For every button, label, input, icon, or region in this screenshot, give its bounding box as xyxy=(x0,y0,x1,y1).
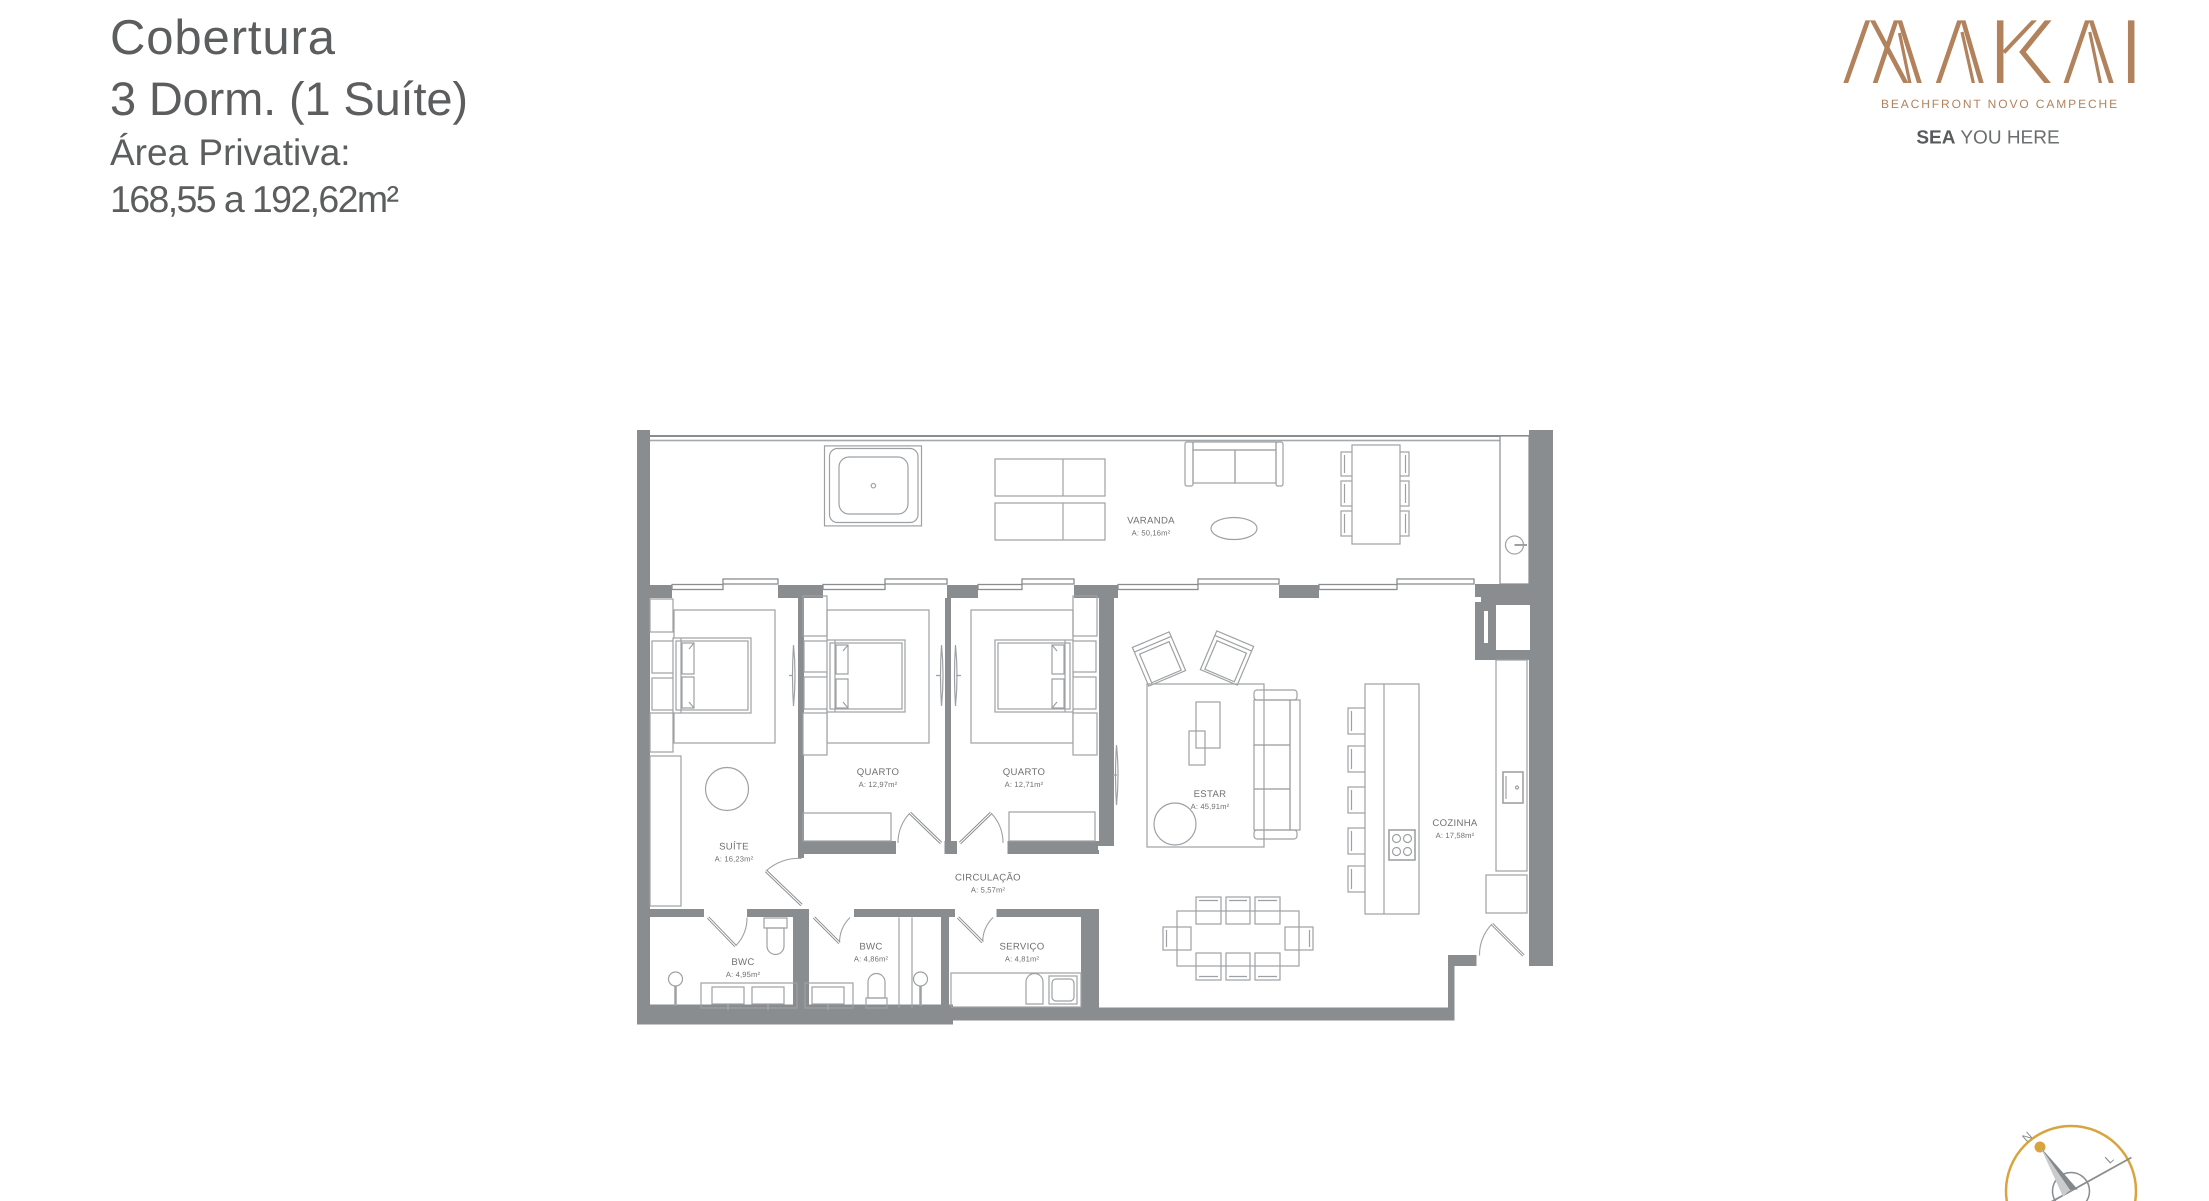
svg-text:A: 4,81m²: A: 4,81m² xyxy=(1005,955,1040,964)
svg-text:BEACHFRONT NOVO CAMPECHE: BEACHFRONT NOVO CAMPECHE xyxy=(1881,97,2119,111)
svg-text:3 Dorm. (1 Suíte): 3 Dorm. (1 Suíte) xyxy=(110,72,468,125)
svg-text:A: 45,91m²: A: 45,91m² xyxy=(1191,802,1230,811)
svg-text:CIRCULAÇÃO: CIRCULAÇÃO xyxy=(955,872,1021,884)
svg-text:168,55 a 192,62m²: 168,55 a 192,62m² xyxy=(110,178,399,220)
svg-text:A: 17,58m²: A: 17,58m² xyxy=(1436,831,1475,840)
svg-text:VARANDA: VARANDA xyxy=(1127,516,1175,527)
svg-text:A: 5,57m²: A: 5,57m² xyxy=(971,886,1006,895)
svg-text:COZINHA: COZINHA xyxy=(1432,818,1478,829)
svg-text:Área Privativa:: Área Privativa: xyxy=(110,132,351,173)
svg-text:ESTAR: ESTAR xyxy=(1194,789,1227,800)
svg-text:A: 12,97m²: A: 12,97m² xyxy=(859,780,898,789)
svg-text:BWC: BWC xyxy=(731,957,754,968)
svg-text:BWC: BWC xyxy=(859,942,882,953)
svg-text:A: 4,95m²: A: 4,95m² xyxy=(726,970,761,979)
svg-text:QUARTO: QUARTO xyxy=(1003,767,1046,778)
svg-text:Cobertura: Cobertura xyxy=(110,11,336,65)
svg-text:SERVIÇO: SERVIÇO xyxy=(999,942,1044,953)
svg-text:A: 50,16m²: A: 50,16m² xyxy=(1132,529,1171,538)
svg-text:A: 4,86m²: A: 4,86m² xyxy=(854,955,889,964)
svg-text:SUÍTE: SUÍTE xyxy=(719,841,749,853)
svg-text:A: 12,71m²: A: 12,71m² xyxy=(1005,780,1044,789)
svg-text:A: 16,23m²: A: 16,23m² xyxy=(715,855,754,864)
svg-text:QUARTO: QUARTO xyxy=(857,767,900,778)
svg-text:SEA YOU HERE: SEA YOU HERE xyxy=(1916,128,2059,149)
